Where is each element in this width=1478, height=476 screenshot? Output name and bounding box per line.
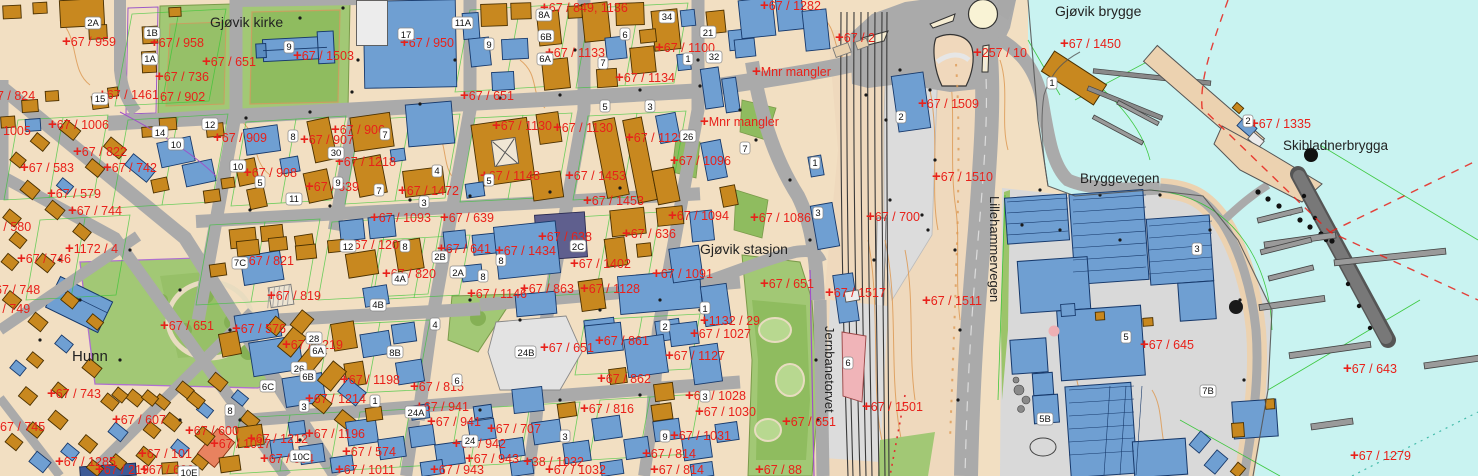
svg-text:3: 3 — [421, 198, 426, 209]
svg-text:+67 / 819: +67 / 819 — [267, 287, 321, 304]
svg-text:+67 / 600: +67 / 600 — [185, 422, 239, 439]
svg-text:+67 / 2: +67 / 2 — [835, 29, 875, 46]
svg-text:1: 1 — [685, 54, 690, 65]
svg-text:+67 / 814: +67 / 814 — [642, 445, 696, 462]
svg-text:10: 10 — [233, 162, 244, 173]
svg-text:12: 12 — [343, 242, 354, 253]
svg-text:10: 10 — [171, 140, 182, 151]
svg-text:67 / 748: 67 / 748 — [0, 283, 40, 297]
svg-text:10C: 10C — [292, 452, 310, 463]
svg-text:+67 / 736: +67 / 736 — [155, 68, 209, 85]
svg-text:+67 / 101: +67 / 101 — [138, 445, 192, 462]
svg-text:+67 / 1011: +67 / 1011 — [335, 461, 395, 476]
svg-text:6: 6 — [622, 30, 627, 41]
svg-text:Lillehammervegen: Lillehammervegen — [987, 196, 1002, 302]
svg-text:+67 / 219: +67 / 219 — [95, 461, 149, 476]
svg-text:+1172 / 4: +1172 / 4 — [65, 240, 118, 257]
svg-text:67 / 824: 67 / 824 — [0, 89, 35, 103]
svg-text:+67 / 576: +67 / 576 — [232, 320, 286, 337]
svg-text:+67 / 1146: +67 / 1146 — [467, 285, 527, 302]
svg-text:9: 9 — [486, 40, 491, 51]
svg-text:+67 / 816: +67 / 816 — [580, 400, 634, 417]
svg-text:1: 1 — [702, 304, 707, 315]
svg-text:+67 / 1510: +67 / 1510 — [932, 168, 993, 185]
svg-text:+67 / 941: +67 / 941 — [427, 413, 481, 430]
svg-text:+Mnr mangler: +Mnr mangler — [752, 63, 831, 80]
svg-text:8: 8 — [480, 272, 485, 283]
svg-text:+67 / 1006: +67 / 1006 — [48, 116, 109, 133]
svg-text:2C: 2C — [572, 242, 584, 253]
svg-text:6: 6 — [454, 376, 459, 387]
svg-text:+67 / 1501: +67 / 1501 — [862, 398, 923, 415]
svg-text:7B: 7B — [1202, 386, 1214, 397]
svg-text:+67 / 906: +67 / 906 — [331, 121, 385, 138]
svg-text:+67 / 1212: +67 / 1212 — [247, 430, 308, 447]
svg-text:+67 / 822: +67 / 822 — [73, 143, 127, 160]
svg-text:4: 4 — [432, 320, 437, 331]
svg-text:+67 / 707: +67 / 707 — [487, 420, 541, 437]
svg-text:+67 / 862: +67 / 862 — [597, 370, 651, 387]
svg-text:26: 26 — [683, 132, 694, 143]
svg-text:Bryggevegen: Bryggevegen — [1080, 171, 1160, 186]
svg-text:67 / 745: 67 / 745 — [0, 420, 45, 434]
svg-text:Hunn: Hunn — [72, 348, 108, 365]
svg-text:+67 / 651: +67 / 651 — [760, 275, 814, 292]
svg-text:+67 / 742: +67 / 742 — [103, 159, 157, 176]
svg-text:9: 9 — [335, 178, 340, 189]
svg-text:24: 24 — [465, 436, 476, 447]
svg-text:8: 8 — [402, 242, 407, 253]
svg-text:1: 1 — [1049, 78, 1054, 89]
svg-text:+67 / 700: +67 / 700 — [866, 208, 920, 225]
svg-text:14: 14 — [155, 128, 166, 139]
svg-text:3: 3 — [301, 402, 306, 413]
svg-text:1: 1 — [812, 158, 817, 169]
svg-text:+67 / 607: +67 / 607 — [112, 411, 166, 428]
svg-text:7: 7 — [742, 144, 747, 155]
svg-text:28: 28 — [309, 334, 320, 345]
svg-text:Skibladnerbrygga: Skibladnerbrygga — [1283, 138, 1389, 153]
svg-text:+67 / 1517: +67 / 1517 — [825, 284, 886, 301]
svg-text:+67 / 743: +67 / 743 — [47, 385, 101, 402]
svg-text:+67 / 1032: +67 / 1032 — [545, 461, 606, 476]
svg-text:12: 12 — [205, 120, 216, 131]
svg-text:+67 / 88: +67 / 88 — [755, 461, 802, 476]
svg-text:1B: 1B — [146, 28, 158, 39]
svg-text:5: 5 — [257, 178, 262, 189]
svg-text:+67 / 583: +67 / 583 — [20, 159, 74, 176]
svg-text:Gjøvik kirke: Gjøvik kirke — [210, 14, 283, 30]
svg-text:24B: 24B — [518, 348, 535, 359]
svg-text:+67 / 1214: +67 / 1214 — [305, 390, 366, 407]
svg-text:8B: 8B — [389, 348, 401, 359]
svg-text:+67 / 1402: +67 / 1402 — [570, 255, 631, 272]
svg-text:5: 5 — [602, 102, 607, 113]
svg-text:30: 30 — [331, 148, 342, 159]
svg-text:6A: 6A — [539, 54, 551, 65]
svg-text:+257 / 10: +257 / 10 — [973, 44, 1027, 61]
svg-text:34: 34 — [662, 12, 673, 23]
svg-text:5B: 5B — [1039, 414, 1051, 425]
svg-text:3: 3 — [647, 102, 652, 113]
svg-text:+67 / 651: +67 / 651 — [460, 87, 514, 104]
svg-text:2: 2 — [898, 112, 903, 123]
svg-text:11A: 11A — [455, 18, 472, 29]
svg-text:+67 / 651: +67 / 651 — [202, 53, 256, 70]
svg-text:Gjøvik brygge: Gjøvik brygge — [1055, 3, 1142, 19]
svg-text:+67 / 863: +67 / 863 — [520, 280, 574, 297]
svg-text:+67 / 651: +67 / 651 — [782, 413, 836, 430]
svg-text:5: 5 — [1123, 332, 1128, 343]
svg-text:24A: 24A — [408, 408, 426, 419]
svg-text:2: 2 — [1245, 116, 1250, 127]
svg-text:+67 / 636: +67 / 636 — [622, 225, 676, 242]
svg-text:10E: 10E — [181, 468, 198, 476]
svg-text:4: 4 — [434, 166, 439, 177]
svg-text:+67 / 1503: +67 / 1503 — [293, 47, 354, 64]
svg-text:3: 3 — [702, 392, 707, 403]
svg-text:2B: 2B — [434, 252, 446, 263]
svg-text:4B: 4B — [372, 300, 384, 311]
svg-text:+67 / 943: +67 / 943 — [430, 461, 484, 476]
svg-text:+67 / 1128: +67 / 1128 — [580, 280, 640, 297]
svg-text:+67 / 1196: +67 / 1196 — [305, 425, 365, 442]
svg-text:+67 / 1028: +67 / 1028 — [685, 387, 746, 404]
svg-text:6C: 6C — [262, 382, 274, 393]
svg-text:7: 7 — [382, 130, 387, 141]
svg-text:8: 8 — [227, 406, 232, 417]
svg-text:+67 / 1511: +67 / 1511 — [922, 292, 982, 309]
svg-text:+67 / 651: +67 / 651 — [160, 317, 214, 334]
svg-text:7: 7 — [376, 186, 381, 197]
svg-text:1: 1 — [372, 396, 377, 407]
svg-text:+67 / 1509: +67 / 1509 — [918, 95, 979, 112]
svg-text:8A: 8A — [538, 10, 550, 21]
svg-text:+67 / 645: +67 / 645 — [1140, 336, 1194, 353]
svg-text:+67 / 1129: +67 / 1129 — [625, 129, 685, 146]
svg-text:11: 11 — [289, 194, 299, 205]
svg-text:+67 / 908: +67 / 908 — [243, 164, 297, 181]
svg-text:+67 / 574: +67 / 574 — [342, 443, 396, 460]
svg-text:+67 / 1282: +67 / 1282 — [760, 0, 821, 14]
svg-text:+67 / 639: +67 / 639 — [440, 209, 494, 226]
svg-text:+67 / 744: +67 / 744 — [68, 202, 122, 219]
svg-text:67 / 749: 67 / 749 — [0, 302, 30, 316]
svg-text:+67 / 849, 1136: +67 / 849, 1136 — [540, 0, 628, 16]
svg-text:9: 9 — [662, 432, 667, 443]
svg-text:+Mnr mangler: +Mnr mangler — [700, 113, 779, 130]
svg-text:+67 / 1130: +67 / 1130 — [553, 119, 613, 136]
svg-text:5: 5 — [486, 176, 491, 187]
svg-text:+67 / 820: +67 / 820 — [382, 265, 436, 282]
svg-text:+67 / 1198: +67 / 1198 — [340, 371, 400, 388]
svg-text:1A: 1A — [144, 54, 156, 65]
svg-text:+67 / 1453: +67 / 1453 — [565, 167, 626, 184]
svg-text:+67 / 579: +67 / 579 — [47, 185, 101, 202]
svg-text:32: 32 — [709, 52, 720, 63]
svg-text:7: 7 — [600, 58, 605, 69]
svg-text:+67 / 814: +67 / 814 — [650, 461, 704, 476]
svg-text:+67 / 1450: +67 / 1450 — [1060, 35, 1121, 52]
svg-text:2A: 2A — [452, 268, 464, 279]
svg-text:1005: 1005 — [3, 124, 31, 138]
svg-text:+67 / 1134: +67 / 1134 — [615, 69, 675, 86]
svg-text:6B: 6B — [302, 372, 314, 383]
svg-text:+67 / 1279: +67 / 1279 — [1350, 447, 1411, 464]
svg-text:2A: 2A — [87, 18, 99, 29]
svg-text:Jernbanetorvet: Jernbanetorvet — [822, 326, 837, 413]
svg-text:+67 / 1127: +67 / 1127 — [665, 347, 725, 364]
svg-text:67 / 580: 67 / 580 — [0, 220, 31, 234]
svg-text:+67 / 1453: +67 / 1453 — [583, 192, 644, 209]
svg-text:67 / 902: 67 / 902 — [160, 90, 205, 104]
svg-text:+67 / 942: +67 / 942 — [452, 435, 506, 452]
svg-text:+67 / 1091: +67 / 1091 — [652, 265, 713, 282]
svg-text:7C: 7C — [234, 258, 246, 269]
svg-text:6: 6 — [845, 358, 850, 369]
svg-text:+67 / 639: +67 / 639 — [305, 178, 359, 195]
svg-text:6A: 6A — [312, 346, 324, 357]
svg-text:+67 / 746: +67 / 746 — [17, 250, 71, 267]
svg-text:3: 3 — [815, 208, 820, 219]
svg-text:2: 2 — [662, 322, 667, 333]
svg-text:4A: 4A — [394, 274, 406, 285]
svg-text:15: 15 — [95, 94, 106, 105]
svg-text:+67 / 1096: +67 / 1096 — [670, 152, 731, 169]
svg-text:+67 / 861: +67 / 861 — [595, 332, 649, 349]
svg-text:6B: 6B — [540, 32, 552, 43]
svg-text:+67 / 959: +67 / 959 — [62, 33, 116, 50]
svg-text:3: 3 — [1194, 244, 1199, 255]
svg-text:8: 8 — [498, 256, 503, 267]
svg-text:17: 17 — [401, 30, 412, 41]
svg-text:+67 / 1133: +67 / 1133 — [545, 44, 605, 61]
svg-text:+67 / 1086: +67 / 1086 — [750, 209, 811, 226]
svg-text:+67 / 1093: +67 / 1093 — [370, 209, 431, 226]
svg-text:+67 / 1335: +67 / 1335 — [1250, 115, 1311, 132]
svg-text:+67 / 1030: +67 / 1030 — [695, 403, 756, 420]
svg-text:21: 21 — [703, 28, 714, 39]
svg-text:+67 / 909: +67 / 909 — [213, 129, 267, 146]
svg-text:+67 / 1094: +67 / 1094 — [668, 207, 729, 224]
svg-text:+67 / 651: +67 / 651 — [540, 339, 594, 356]
svg-text:Gjøvik stasjon: Gjøvik stasjon — [700, 241, 788, 257]
svg-text:+67 / 1031: +67 / 1031 — [670, 427, 731, 444]
svg-text:8: 8 — [290, 132, 295, 143]
svg-text:9: 9 — [286, 42, 291, 53]
svg-text:+67 / 643: +67 / 643 — [1343, 360, 1397, 377]
svg-text:+67 / 1130: +67 / 1130 — [492, 117, 552, 134]
svg-text:3: 3 — [562, 432, 567, 443]
svg-text:+67 / 1027: +67 / 1027 — [690, 325, 751, 342]
